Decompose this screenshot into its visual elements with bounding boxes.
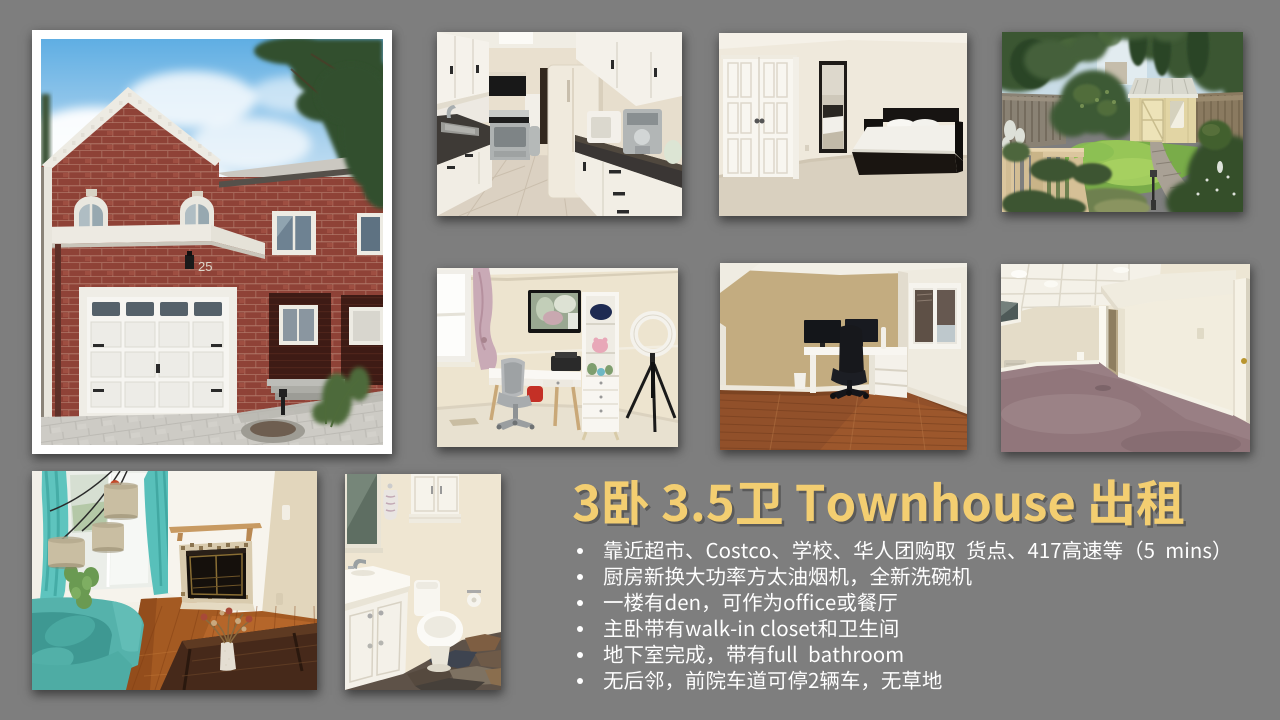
svg-text:25: 25 xyxy=(198,259,212,274)
